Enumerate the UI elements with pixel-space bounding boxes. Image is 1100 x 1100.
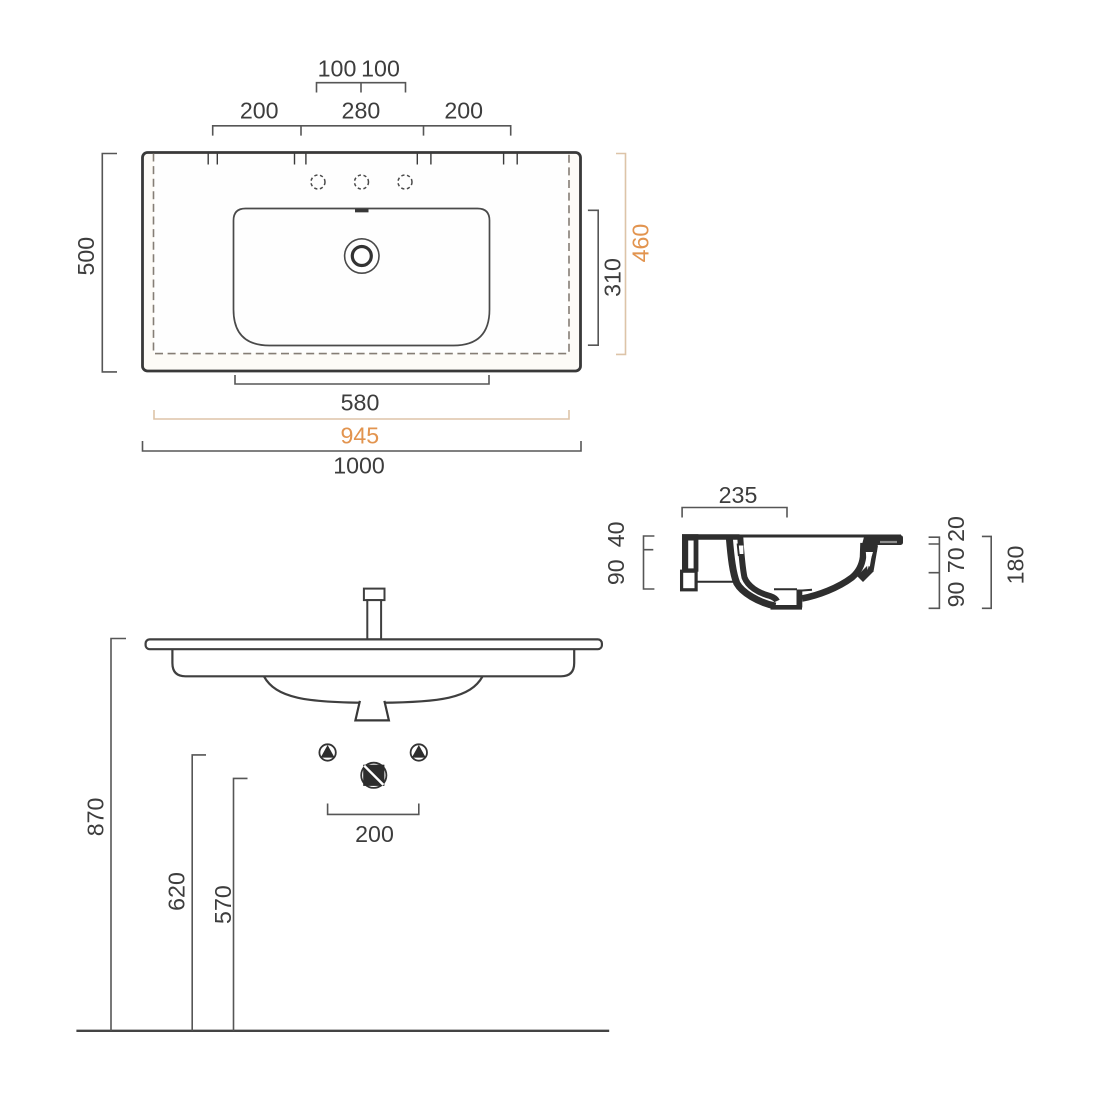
svg-text:460: 460 <box>628 224 654 263</box>
svg-text:945: 945 <box>340 423 379 449</box>
svg-text:570: 570 <box>210 885 236 924</box>
svg-text:20: 20 <box>943 516 969 542</box>
svg-text:870: 870 <box>83 798 109 837</box>
svg-text:310: 310 <box>600 258 626 297</box>
svg-text:90: 90 <box>603 559 629 585</box>
svg-text:500: 500 <box>73 237 99 276</box>
svg-text:200: 200 <box>240 97 279 123</box>
svg-text:1000: 1000 <box>333 453 385 479</box>
svg-text:620: 620 <box>164 872 190 911</box>
svg-text:235: 235 <box>719 482 758 508</box>
svg-text:200: 200 <box>355 821 394 847</box>
svg-text:100: 100 <box>361 56 400 82</box>
svg-text:180: 180 <box>1003 546 1029 585</box>
svg-text:70: 70 <box>943 547 969 573</box>
svg-text:280: 280 <box>342 97 381 123</box>
svg-text:200: 200 <box>444 97 483 123</box>
svg-text:40: 40 <box>603 522 629 548</box>
svg-text:100: 100 <box>318 56 357 82</box>
svg-text:90: 90 <box>943 582 969 608</box>
svg-text:580: 580 <box>341 390 380 416</box>
